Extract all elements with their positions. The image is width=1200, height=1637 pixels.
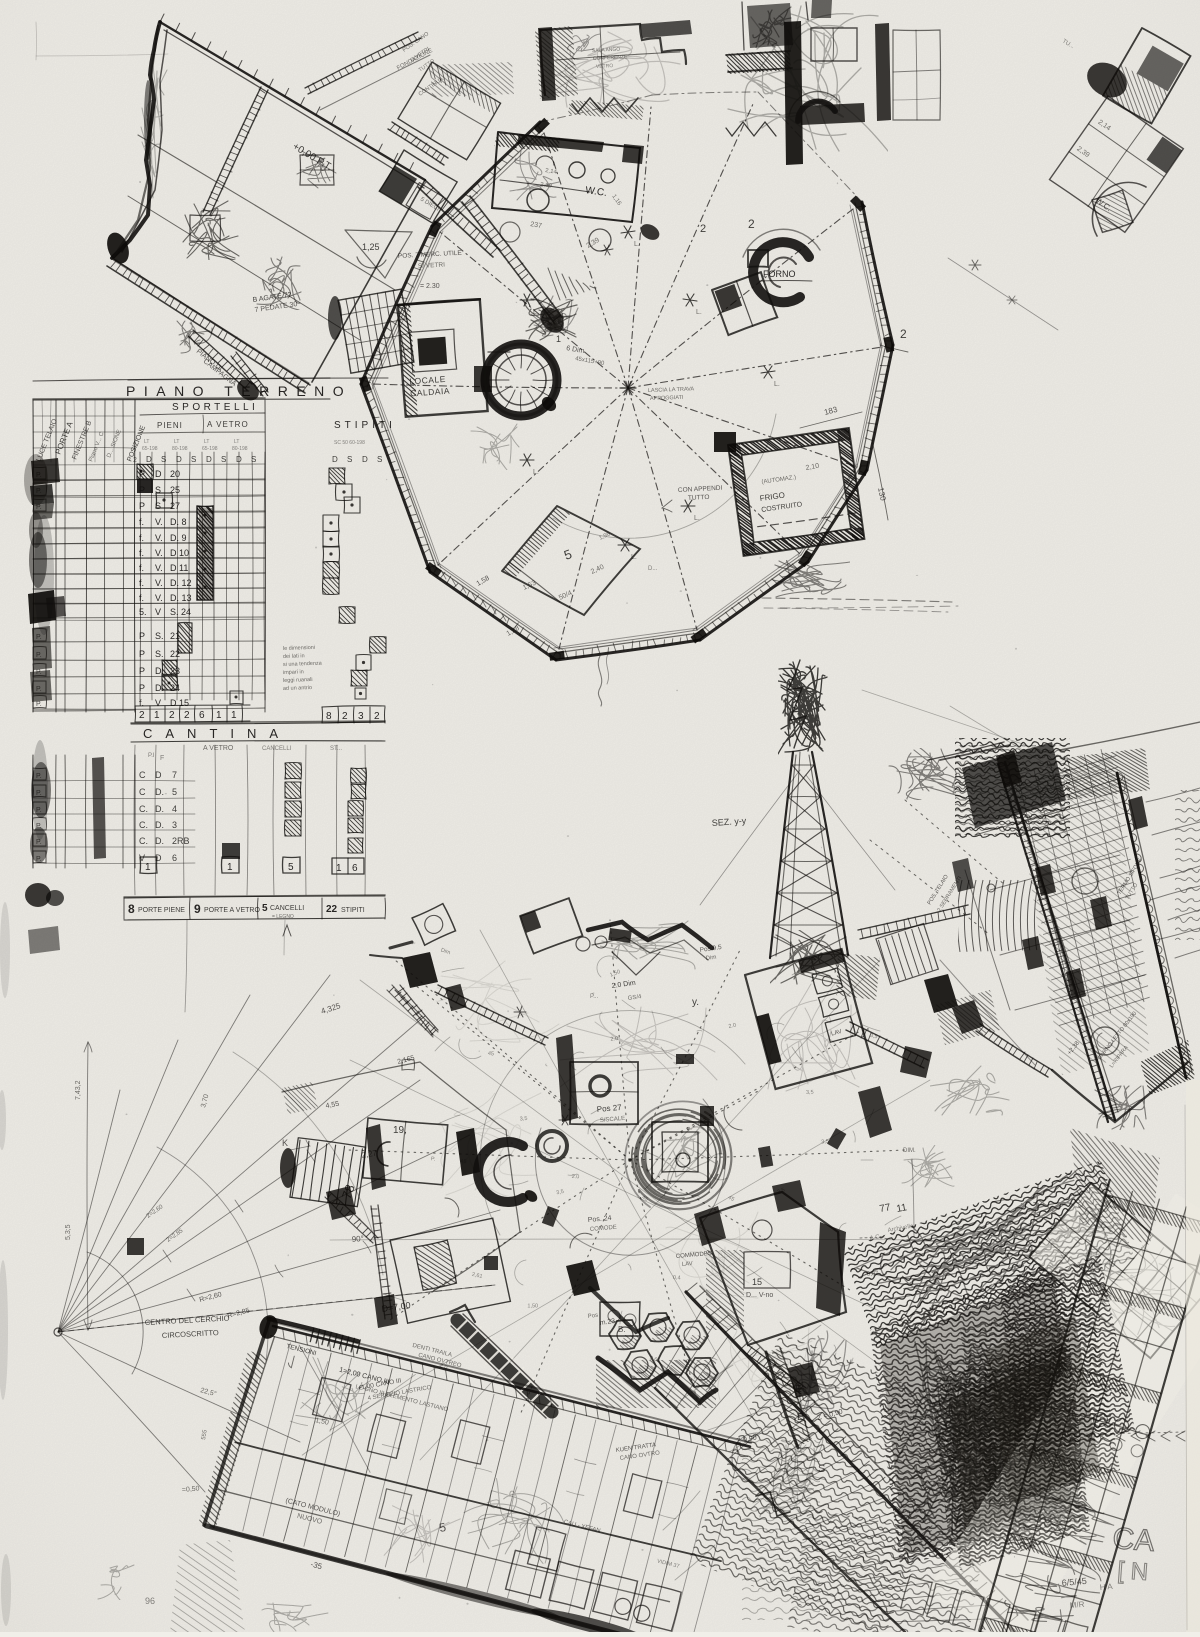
- svg-text:S: S: [377, 455, 382, 464]
- svg-text:V.: V.: [155, 548, 163, 558]
- svg-text:[ N: [ N: [1117, 1557, 1149, 1586]
- svg-text:LT: LT: [144, 439, 149, 445]
- svg-text:5: 5: [262, 903, 268, 914]
- svg-text:f.: f.: [139, 698, 144, 708]
- svg-text:0,4: 0,4: [673, 1275, 681, 1281]
- svg-text:STIPITI: STIPITI: [341, 907, 365, 914]
- svg-text:80-198: 80-198: [232, 446, 248, 452]
- svg-text:1: 1: [336, 863, 342, 874]
- svg-text:80-198: 80-198: [172, 446, 188, 452]
- svg-text:D... V-no: D... V-no: [746, 1292, 773, 1299]
- svg-text:2: 2: [184, 710, 190, 721]
- svg-text:D 10: D 10: [170, 548, 189, 558]
- svg-text:V: V: [155, 698, 161, 708]
- svg-text:1: 1: [556, 334, 561, 344]
- svg-text:S/ VETRI: S/ VETRI: [418, 262, 446, 270]
- svg-text:PORTE PIENE: PORTE PIENE: [138, 907, 185, 914]
- svg-text:f.: f.: [139, 533, 144, 543]
- svg-text:D 11: D 11: [170, 563, 188, 573]
- svg-text:1,50: 1,50: [527, 1303, 538, 1309]
- svg-text:SPORTELLI: SPORTELLI: [172, 402, 258, 413]
- svg-text:D.: D.: [155, 787, 164, 797]
- svg-text:A VETRO: A VETRO: [207, 420, 249, 429]
- svg-text:6: 6: [352, 863, 358, 874]
- svg-text:P...: P...: [590, 994, 599, 1000]
- svg-text:f.: f.: [139, 578, 144, 588]
- svg-text:S. 24: S. 24: [170, 607, 191, 617]
- svg-text:8: 8: [128, 902, 135, 916]
- svg-text:D: D: [155, 770, 162, 780]
- svg-text:CANCELLI: CANCELLI: [262, 746, 292, 752]
- svg-text:P: P: [139, 501, 145, 511]
- svg-text:3: 3: [358, 711, 364, 722]
- svg-text:D. 8: D. 8: [170, 517, 187, 527]
- svg-text:4: 4: [172, 804, 177, 814]
- svg-text:L.: L.: [533, 309, 539, 316]
- svg-text:CANCELLI: CANCELLI: [270, 905, 304, 912]
- svg-text:impari in: impari in: [283, 669, 304, 676]
- svg-text:96: 96: [145, 1596, 155, 1606]
- svg-text:LT: LT: [174, 439, 179, 445]
- svg-text:2: 2: [700, 223, 706, 235]
- svg-text:H A: H A: [1099, 1582, 1113, 1592]
- svg-text:2: 2: [900, 327, 907, 341]
- svg-text:D: D: [146, 455, 152, 464]
- svg-text:19,: 19,: [393, 1125, 407, 1136]
- svg-text:ST...: ST...: [330, 746, 342, 752]
- svg-text:PIENI: PIENI: [157, 421, 183, 430]
- svg-text:S.: S.: [155, 649, 164, 659]
- svg-text:D. 9: D. 9: [170, 533, 187, 543]
- svg-text:3,5: 3,5: [806, 1090, 814, 1096]
- svg-text:APPOGGIATI: APPOGGIATI: [650, 395, 684, 402]
- svg-text:5.: 5.: [139, 607, 147, 617]
- svg-text:C: C: [139, 770, 146, 780]
- svg-text:L.: L.: [696, 309, 702, 316]
- svg-text:C.: C.: [139, 820, 148, 830]
- svg-text:20: 20: [170, 469, 180, 479]
- svg-text:S: S: [161, 455, 166, 464]
- svg-text:dei lati in: dei lati in: [283, 653, 305, 660]
- svg-text:L.: L.: [774, 381, 780, 388]
- svg-text:5: 5: [172, 787, 177, 797]
- svg-text:S: S: [347, 455, 352, 464]
- svg-text:M/R: M/R: [1069, 1600, 1085, 1610]
- svg-text:P: P: [139, 649, 145, 659]
- svg-text:leggi ruanali: leggi ruanali: [283, 677, 313, 684]
- svg-text:8: 8: [326, 711, 332, 722]
- svg-text:2: 2: [342, 711, 348, 722]
- svg-text:1: 1: [227, 862, 233, 873]
- svg-text:= 2.30: = 2.30: [420, 283, 440, 290]
- svg-text:27: 27: [170, 501, 180, 511]
- svg-text:f.: f.: [139, 517, 144, 527]
- svg-text:C.: C.: [139, 804, 148, 814]
- svg-text:9: 9: [194, 902, 201, 916]
- svg-text:y.: y.: [692, 997, 699, 1008]
- svg-text:P: P: [139, 631, 145, 641]
- svg-text:D: D: [362, 455, 368, 464]
- svg-text:FORNO: FORNO: [763, 269, 796, 279]
- svg-text:5,3;5: 5,3;5: [65, 1224, 72, 1240]
- svg-text:F: F: [160, 755, 164, 762]
- svg-text:S: S: [221, 455, 226, 464]
- svg-text:CA: CA: [1112, 1522, 1156, 1558]
- svg-text:f.: f.: [139, 563, 144, 573]
- svg-text:DIM.: DIM.: [903, 1148, 916, 1154]
- svg-text:D. 13: D. 13: [170, 593, 192, 603]
- svg-text:3,5: 3,5: [520, 1116, 528, 1123]
- svg-text:65-198: 65-198: [202, 446, 218, 452]
- svg-text:P: P: [139, 666, 145, 676]
- svg-text:V.: V.: [155, 593, 163, 603]
- svg-text:C.: C.: [139, 836, 148, 846]
- svg-text:le dimensioni: le dimensioni: [283, 645, 315, 652]
- svg-text:1: 1: [231, 710, 237, 721]
- svg-text:S.: S.: [155, 631, 164, 641]
- svg-text:45: 45: [487, 1051, 494, 1058]
- svg-text:1,25: 1,25: [362, 242, 380, 252]
- svg-text:2: 2: [139, 710, 145, 721]
- svg-text:6: 6: [172, 853, 177, 863]
- svg-text:6: 6: [199, 710, 205, 721]
- svg-text:K: K: [282, 1138, 288, 1148]
- svg-text:90°: 90°: [351, 1234, 364, 1244]
- svg-text:22: 22: [326, 904, 338, 915]
- svg-text:C: C: [139, 787, 146, 797]
- svg-text:1: 1: [154, 710, 160, 721]
- svg-text:D. 12: D. 12: [170, 578, 192, 588]
- svg-text:LT: LT: [234, 439, 239, 445]
- svg-text:f.: f.: [139, 593, 144, 603]
- svg-text:1: 1: [145, 862, 151, 873]
- svg-text:L.: L.: [533, 469, 539, 476]
- svg-text:P.I: P.I: [148, 753, 155, 759]
- svg-text:LT: LT: [204, 439, 209, 445]
- svg-text:2RB: 2RB: [172, 836, 190, 846]
- svg-text:V.: V.: [155, 517, 163, 527]
- svg-text:P.: P.: [36, 701, 42, 708]
- svg-text:V.: V.: [155, 578, 163, 588]
- svg-text:f.: f.: [139, 548, 144, 558]
- svg-text:TUTTO: TUTTO: [688, 494, 710, 502]
- svg-text:B.: B.: [618, 1325, 626, 1334]
- svg-text:7: 7: [172, 770, 177, 780]
- svg-text:V.: V.: [155, 563, 163, 573]
- svg-text:V.: V.: [155, 533, 163, 543]
- svg-text:2: 2: [133, 457, 137, 464]
- svg-text:D: D: [155, 469, 162, 479]
- svg-text:5: 5: [288, 862, 294, 873]
- svg-text:1: 1: [216, 710, 222, 721]
- svg-text:3: 3: [172, 820, 177, 830]
- svg-text:D.: D.: [155, 836, 164, 846]
- svg-text:15: 15: [752, 1277, 762, 1287]
- svg-text:2: 2: [169, 710, 175, 721]
- svg-text:2: 2: [748, 217, 755, 231]
- svg-text:P: P: [139, 683, 145, 693]
- svg-text:= LEGNO: = LEGNO: [272, 914, 294, 920]
- svg-text:CANTINA: CANTINA: [143, 726, 291, 741]
- svg-text:-0,87: -0,87: [865, 1271, 880, 1278]
- svg-text:D: D: [332, 455, 338, 464]
- svg-text:ad un antrio: ad un antrio: [283, 685, 312, 692]
- svg-text:PORTE A VETRO: PORTE A VETRO: [204, 907, 260, 914]
- svg-text:65-198: 65-198: [142, 446, 158, 452]
- svg-text:D...: D...: [648, 566, 658, 572]
- svg-text:D: D: [206, 455, 212, 464]
- svg-text:L.: L.: [634, 241, 640, 248]
- svg-text:D.: D.: [155, 804, 164, 814]
- svg-text:SC 50 60-198: SC 50 60-198: [334, 440, 365, 446]
- svg-text:S: S: [191, 455, 196, 464]
- svg-text:7,43,2: 7,43,2: [75, 1080, 82, 1100]
- svg-text:D.: D.: [155, 820, 164, 830]
- svg-text:2.0: 2.0: [571, 1174, 579, 1180]
- svg-text:V: V: [155, 607, 161, 617]
- svg-text:A VETRO: A VETRO: [203, 745, 234, 752]
